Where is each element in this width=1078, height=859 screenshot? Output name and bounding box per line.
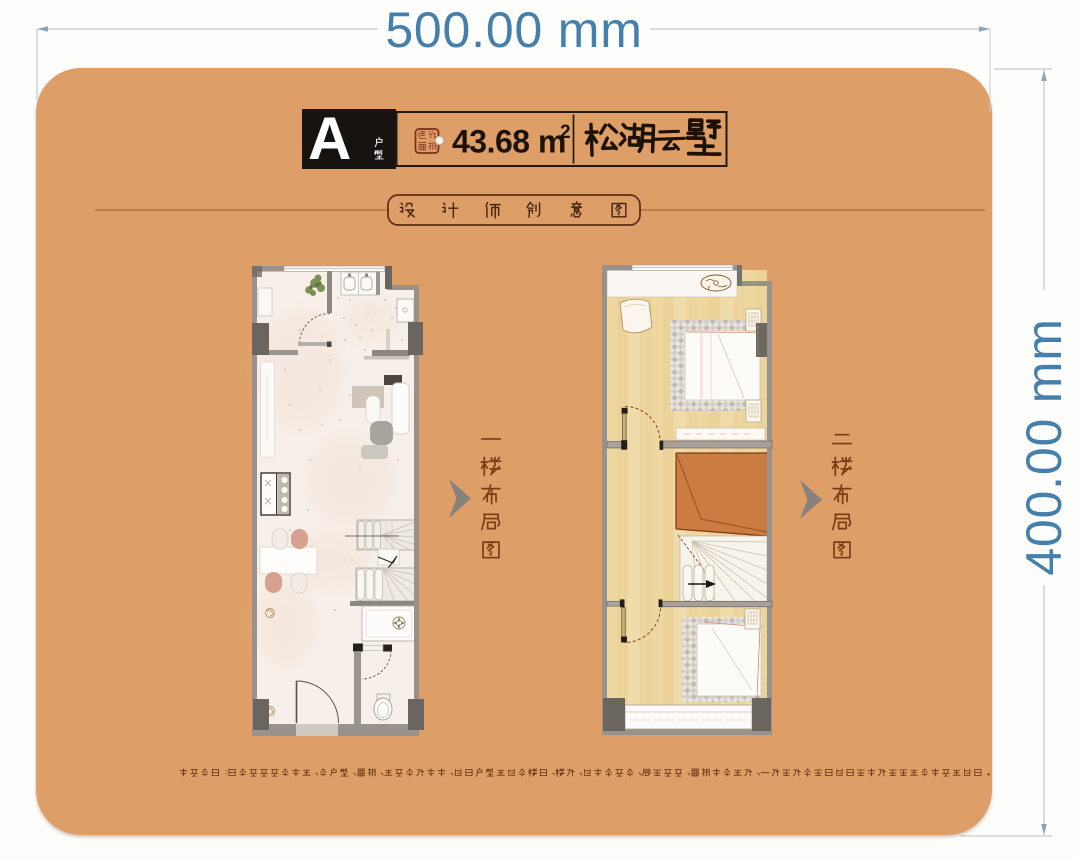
svg-text:2: 2 (560, 122, 571, 143)
svg-text:500.00 mm: 500.00 mm (385, 2, 642, 58)
svg-text:400.00 mm: 400.00 mm (1016, 318, 1072, 575)
svg-text:A: A (308, 105, 351, 172)
svg-text:43.68 m: 43.68 m (452, 124, 566, 160)
